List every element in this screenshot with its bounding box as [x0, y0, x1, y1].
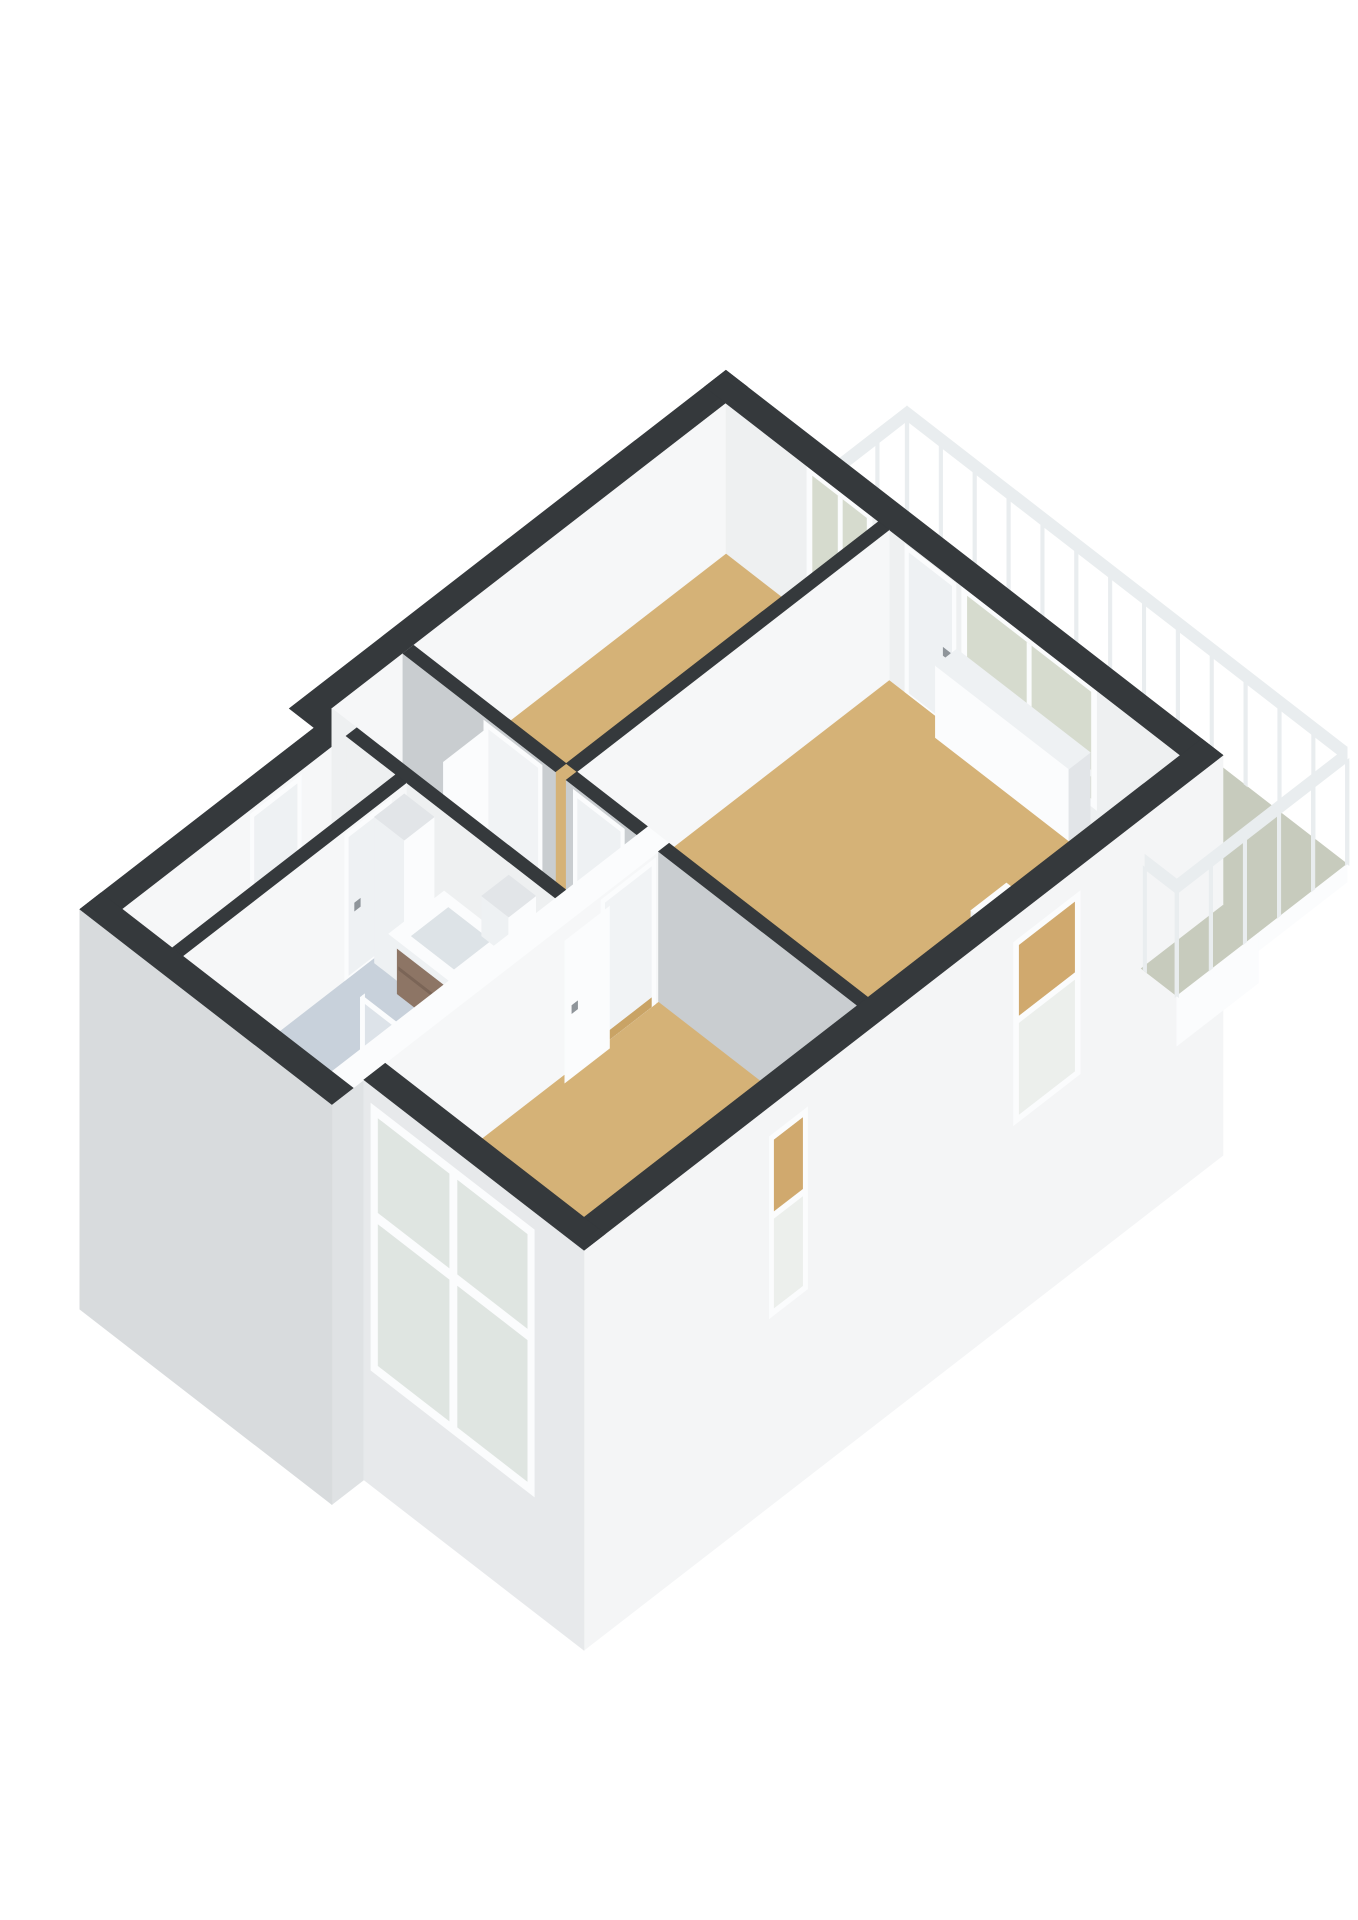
balcony-railing-ne-post-1-3 [1007, 496, 1011, 603]
balcony-railing-ne-post-1-10 [1244, 680, 1248, 787]
balcony-railing-wrap-post-0-0 [1345, 759, 1349, 866]
floor-plan-svg [0, 0, 1358, 1920]
balcony-railing-ne-post-1-2 [973, 470, 977, 577]
balcony-railing-ne-post-1-11 [1278, 706, 1282, 813]
balcony-railing-ne-post-1-9 [1210, 654, 1214, 761]
balcony-railing-wrap-post-0-3 [1243, 838, 1247, 945]
balcony-railing-wrap-post-0-1 [1311, 785, 1315, 892]
balcony-railing-ne-post-1-4 [1041, 523, 1045, 630]
balcony-railing-wrap-post-1-1 [1143, 866, 1147, 973]
balcony-railing-ne-post-1-5 [1075, 549, 1079, 656]
floor-plan-page [0, 0, 1358, 1920]
balcony-railing-wrap-post-0-4 [1209, 864, 1213, 971]
balcony-railing-wrap-post-1-0 [1175, 891, 1179, 998]
balcony-railing-wrap-post-0-2 [1277, 811, 1281, 918]
balcony-railing-ne-post-1-7 [1142, 601, 1146, 708]
facade-jog [332, 1080, 364, 1505]
balcony-railing-ne-post-1-1 [939, 444, 943, 551]
balcony-railing-ne-post-1-0 [905, 418, 909, 525]
balcony-railing-ne-post-1-8 [1176, 628, 1180, 735]
balcony-railing-ne-post-1-6 [1108, 575, 1112, 682]
